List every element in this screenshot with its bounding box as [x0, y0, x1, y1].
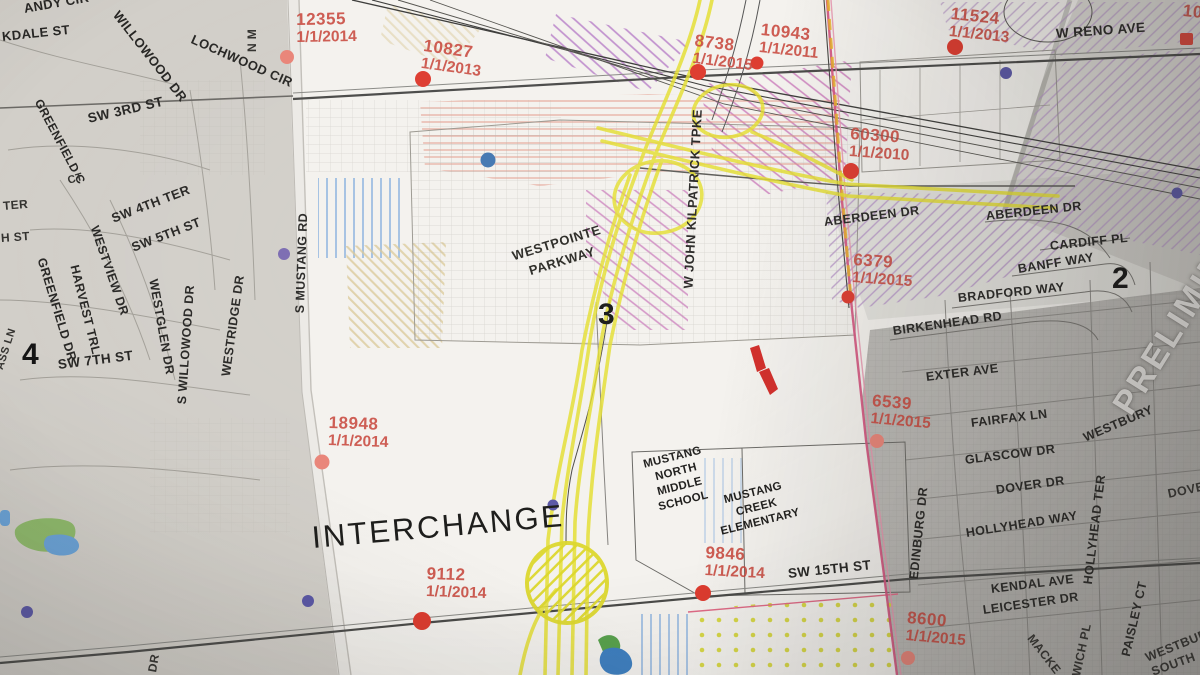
annotation-6539: 6539 1/1/2015: [870, 391, 933, 433]
annotation-date: 1/1/2014: [296, 28, 357, 46]
street-label-dr-fragment: DR: [146, 653, 161, 673]
annotation-8738: 8738 1/1/2015: [692, 31, 756, 74]
map-photo-canvas: ANDY CIR KDALE ST WILLOWOOD DR LOCHWOOD …: [0, 0, 1200, 675]
street-label-n-mustang-fragment: N M: [246, 29, 258, 52]
annotation-6379: 6379 1/1/2015: [851, 250, 914, 291]
annotation-60300: 60300 1/1/2010: [848, 124, 911, 165]
street-label-h-st-fragment: H ST: [1, 230, 31, 244]
annotation-value: 18948: [328, 413, 389, 434]
annotation-10943: 10943 1/1/2011: [758, 20, 821, 62]
annotation-9112: 9112 1/1/2014: [426, 564, 488, 602]
annotation-date: 1/1/2014: [328, 432, 389, 451]
annotation-value: 9112: [426, 564, 487, 585]
sheet-number-2: 2: [1112, 262, 1129, 296]
annotation-8600: 8600 1/1/2015: [905, 608, 968, 650]
sheet-number-4: 4: [22, 338, 39, 372]
sheet-number-3: 3: [598, 298, 615, 332]
annotation-18948: 18948 1/1/2014: [328, 413, 390, 451]
annotation-12355: 12355 1/1/2014: [296, 9, 357, 46]
annotation-value: 10: [1182, 1, 1200, 22]
annotation-11524: 11524 1/1/2013: [948, 4, 1012, 46]
yellow-hatched-roundabout: [527, 543, 607, 623]
annotation-edge-fragment: 10: [1182, 1, 1200, 22]
annotation-9846: 9846 1/1/2014: [704, 543, 766, 582]
street-label-ter-fragment: TER: [2, 198, 28, 212]
annotation-value: 12355: [296, 9, 357, 29]
annotation-date: 1/1/2014: [426, 583, 487, 602]
annotation-date: 1/1/2014: [704, 562, 765, 582]
